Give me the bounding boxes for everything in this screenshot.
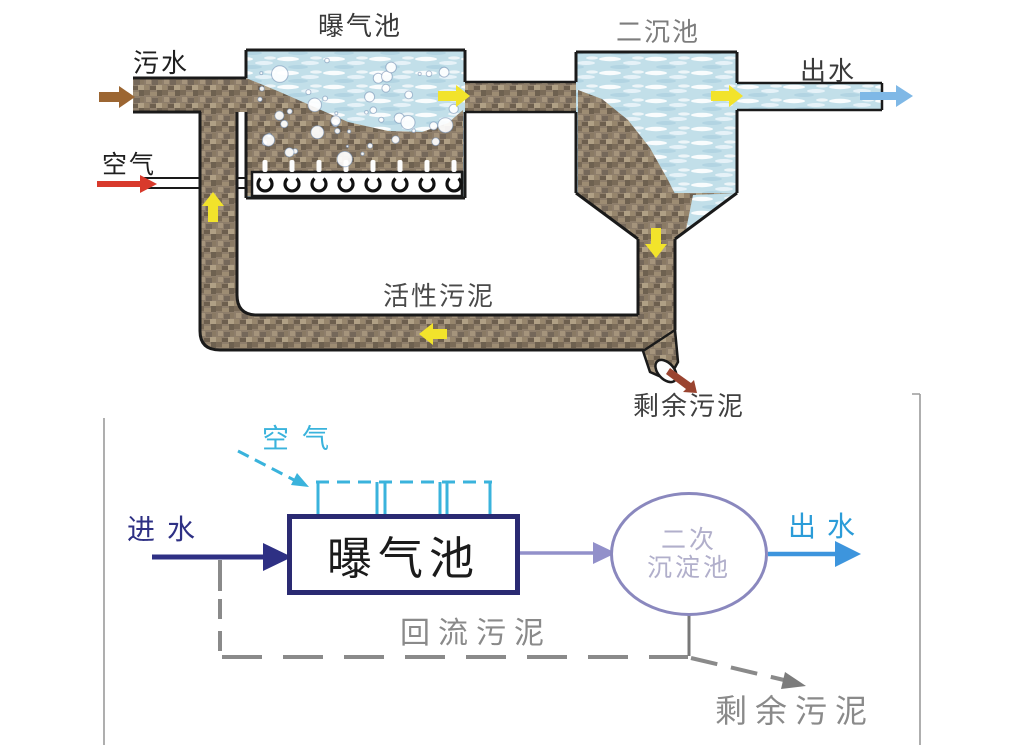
excess-sludge-label-top: 剩余污泥 [633,393,745,423]
activated-sludge-diagram-page: 曝气池 二沉池 污水 出水 空气 活性污泥 剩余污泥 曝气池 二次 沉淀池 进水… [0,0,1009,745]
secondary-clarifier-label-top: 二沉池 [616,19,700,49]
excess-sludge-label-schematic: 剩余污泥 [715,693,875,730]
secondary-clarifier-node-label-line2: 沉淀池 [647,554,731,582]
influent-pipe [133,78,247,112]
influent-arrow-top [99,86,135,108]
activated-sludge-label: 活性污泥 [383,283,495,313]
effluent-arrow-schematic [768,541,861,567]
air-label-top: 空气 [102,151,156,180]
air-feed-pipe [140,178,256,188]
tank-link-arrow [520,542,616,564]
secondary-clarifier-node: 二次 沉淀池 [610,492,768,616]
aeration-tank-node: 曝气池 [287,514,520,595]
effluent-label-schematic: 出水 [788,511,866,543]
aeration-tank [246,50,465,198]
air-arrow-schematic [238,451,294,480]
excess-sludge-arrow-schematic [691,658,806,689]
air-manifold [238,451,492,516]
effluent-label-top: 出水 [800,58,856,88]
aeration-tank-node-label: 曝气池 [327,522,480,587]
aeration-tank-label-top: 曝气池 [318,13,402,43]
influent-label-schematic: 进水 [127,514,207,546]
transfer-pipe [463,82,578,112]
secondary-clarifier-node-label-line1: 二次 [661,526,717,554]
return-sludge-label: 回流污泥 [400,617,552,652]
influent-label-top: 污水 [133,50,189,80]
air-label-schematic: 空气 [262,424,342,455]
